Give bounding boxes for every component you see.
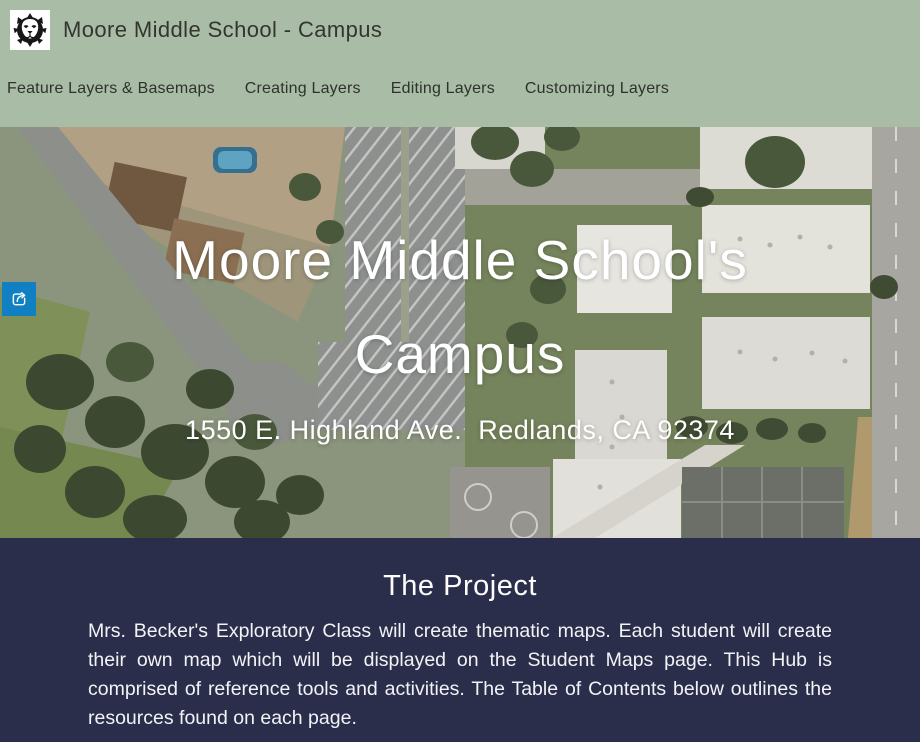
hero-banner: Moore Middle School'sCampus 1550 E. High…: [0, 127, 920, 538]
site-header: Moore Middle School - Campus Feature Lay…: [0, 0, 920, 127]
header-top-row: Moore Middle School - Campus: [0, 0, 920, 52]
site-title: Moore Middle School - Campus: [63, 17, 382, 43]
nav-creating-layers[interactable]: Creating Layers: [245, 80, 361, 98]
hero-title-line2: Campus: [355, 323, 566, 385]
project-description: Mrs. Becker's Exploratory Class will cre…: [88, 617, 832, 733]
share-icon: [7, 287, 31, 311]
lion-logo-icon[interactable]: [10, 10, 50, 50]
share-button[interactable]: [2, 282, 36, 316]
hero-title: Moore Middle School'sCampus: [0, 213, 920, 401]
project-heading: The Project: [0, 538, 920, 603]
nav-customizing-layers[interactable]: Customizing Layers: [525, 80, 669, 98]
nav-feature-layers-basemaps[interactable]: Feature Layers & Basemaps: [7, 80, 215, 98]
hero-text-block: Moore Middle School'sCampus 1550 E. High…: [0, 213, 920, 446]
hero-title-line1: Moore Middle School's: [172, 229, 748, 291]
hero-address: 1550 E. Highland Ave. Redlands, CA 92374: [0, 415, 920, 446]
main-nav: Feature Layers & Basemaps Creating Layer…: [0, 52, 920, 98]
nav-editing-layers[interactable]: Editing Layers: [391, 80, 495, 98]
project-section: The Project Mrs. Becker's Exploratory Cl…: [0, 538, 920, 742]
